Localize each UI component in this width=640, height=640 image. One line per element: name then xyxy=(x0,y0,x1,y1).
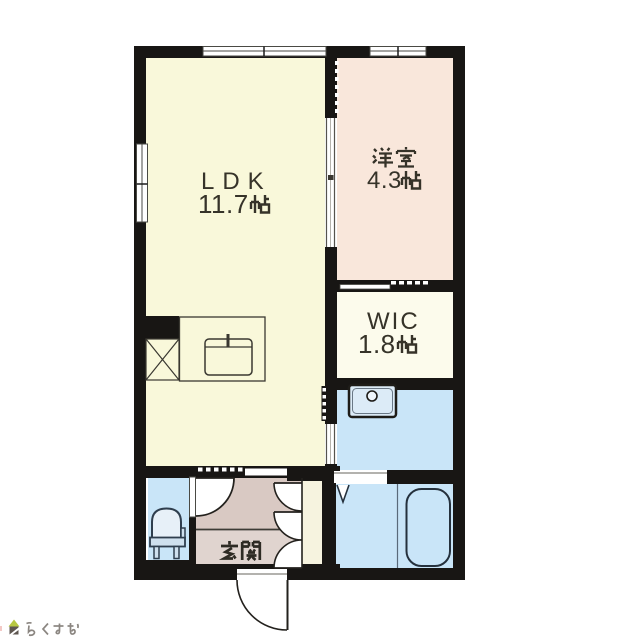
svg-text:1.8: 1.8 xyxy=(358,329,396,359)
svg-text:11.7: 11.7 xyxy=(198,189,249,219)
svg-text:4.3: 4.3 xyxy=(367,167,402,194)
